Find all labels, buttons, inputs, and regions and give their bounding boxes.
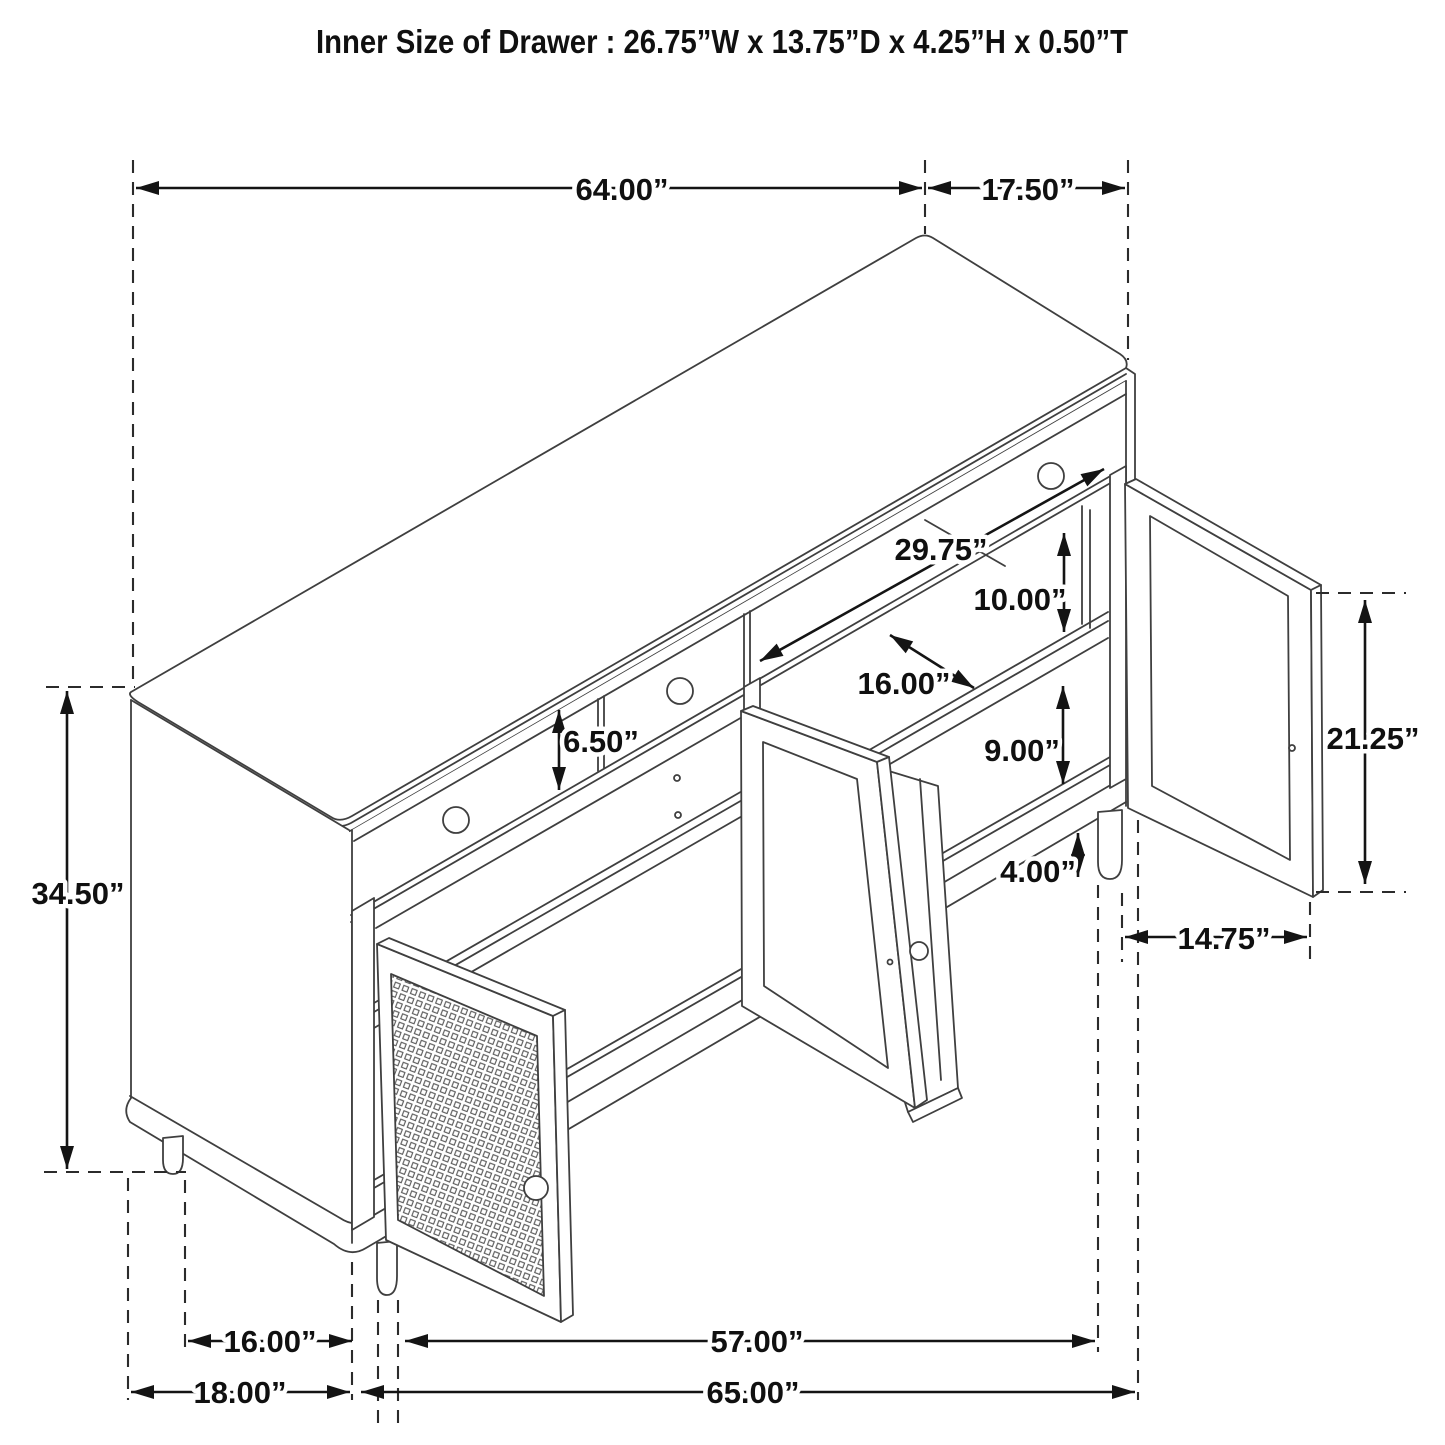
front-right-leg bbox=[1098, 810, 1122, 879]
dim-label-overall-height: 34.50” bbox=[31, 876, 124, 911]
dim-label-upper-clearance: 10.00” bbox=[973, 582, 1066, 617]
dim-label-overall-width: 65.00” bbox=[706, 1375, 799, 1410]
dim-label-top-depth: 17.50” bbox=[981, 172, 1074, 207]
dim-label-opening-width: 29.75” bbox=[894, 532, 987, 567]
right-door bbox=[1125, 479, 1323, 897]
dim-label-left-base: 18.00” bbox=[193, 1375, 286, 1410]
front-left-leg bbox=[377, 1241, 397, 1295]
dim-label-door-height: 21.25” bbox=[1326, 721, 1419, 756]
sideboard-dimension-drawing: Inner Size of Drawer : 26.75”W x 13.75”D… bbox=[0, 0, 1445, 1445]
page-title: Inner Size of Drawer : 26.75”W x 13.75”D… bbox=[316, 23, 1128, 60]
dim-label-lower-clearance: 9.00” bbox=[984, 733, 1060, 768]
middle-door-knob bbox=[910, 942, 928, 960]
dimension-diagram-page: Inner Size of Drawer : 26.75”W x 13.75”D… bbox=[0, 0, 1445, 1445]
drawer-knob-2 bbox=[667, 678, 693, 704]
dim-label-drawer-height: 6.50” bbox=[563, 724, 639, 759]
dim-label-shelf-depth: 16.00” bbox=[857, 666, 950, 701]
drawer-knob-3 bbox=[1038, 463, 1064, 489]
dim-label-leg-height: 4.00” bbox=[1000, 854, 1076, 889]
cane-door-knob bbox=[524, 1176, 548, 1200]
drawer-knob-1 bbox=[443, 807, 469, 833]
dim-label-left-section: 16.00” bbox=[223, 1324, 316, 1359]
cabinet-drawing bbox=[126, 236, 1323, 1323]
right-stile bbox=[1110, 466, 1126, 788]
dim-label-door-width: 14.75” bbox=[1177, 921, 1270, 956]
back-left-leg bbox=[163, 1136, 183, 1174]
dim-label-right-section: 57.00” bbox=[710, 1324, 803, 1359]
left-stile bbox=[352, 898, 374, 1230]
dim-label-top-width: 64.00” bbox=[575, 172, 668, 207]
